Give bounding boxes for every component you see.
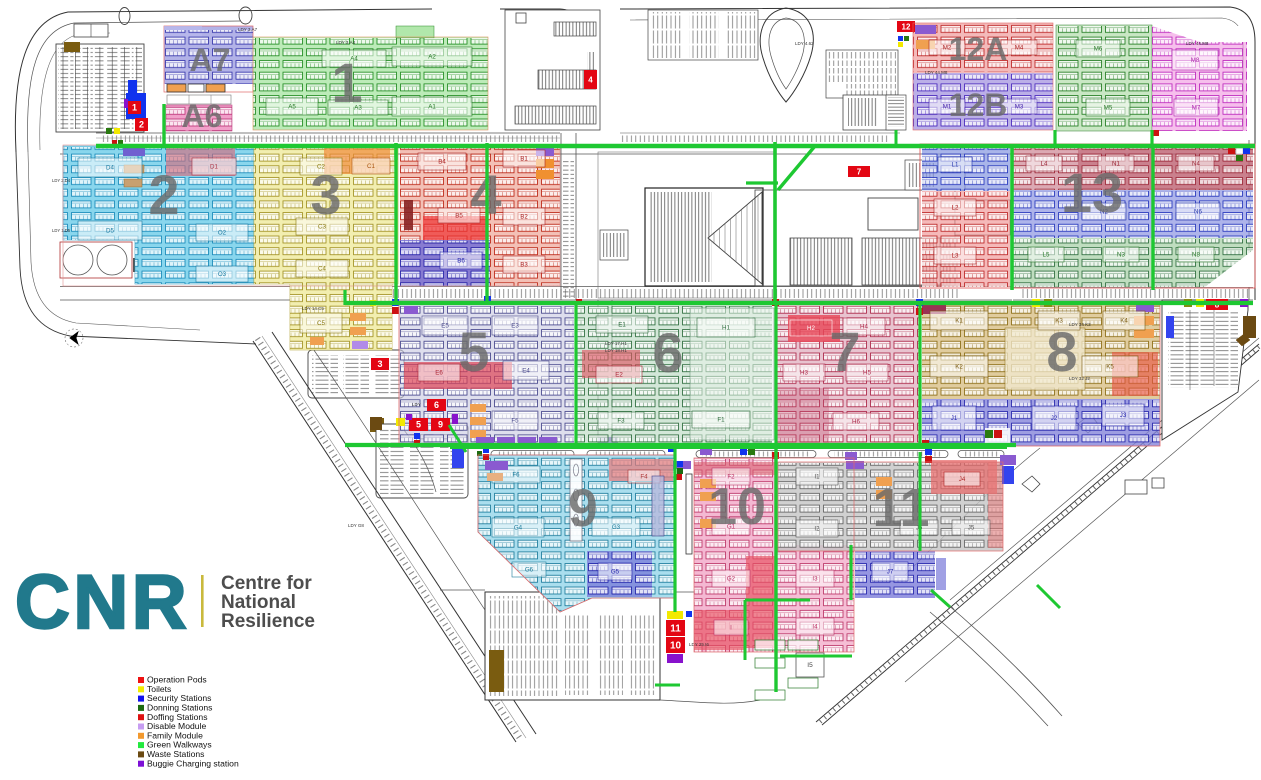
svg-text:G2: G2 <box>727 576 736 583</box>
svg-text:I1: I1 <box>814 474 820 481</box>
svg-text:J1: J1 <box>951 415 958 422</box>
svg-text:H4: H4 <box>860 324 868 331</box>
svg-text:E5: E5 <box>441 323 449 330</box>
svg-text:A1: A1 <box>428 104 436 111</box>
svg-text:N4: N4 <box>1192 161 1200 168</box>
svg-text:E2: E2 <box>615 372 623 379</box>
svg-text:LDY 4.62: LDY 4.62 <box>795 41 814 46</box>
svg-text:G4: G4 <box>514 525 523 532</box>
svg-text:M5: M5 <box>1104 105 1113 112</box>
svg-text:J4: J4 <box>959 476 966 483</box>
svg-text:E1: E1 <box>618 322 626 329</box>
svg-text:O3: O3 <box>218 271 227 278</box>
svg-text:B6: B6 <box>457 258 465 265</box>
svg-text:H3: H3 <box>800 370 808 377</box>
svg-text:LDY G8: LDY G8 <box>348 523 364 528</box>
svg-text:L2: L2 <box>952 205 959 212</box>
svg-text:E4: E4 <box>522 368 530 375</box>
svg-text:3: 3 <box>310 163 341 226</box>
svg-text:1: 1 <box>331 51 362 114</box>
svg-text:F1: F1 <box>717 417 725 424</box>
svg-text:M8: M8 <box>1191 57 1200 64</box>
svg-text:H2: H2 <box>807 325 815 332</box>
svg-text:M4: M4 <box>1015 45 1024 52</box>
svg-text:A5: A5 <box>288 104 296 111</box>
svg-text:2: 2 <box>139 120 144 130</box>
svg-text:L3: L3 <box>952 253 959 260</box>
svg-text:LDY 14.C5: LDY 14.C5 <box>302 306 324 311</box>
svg-text:M6: M6 <box>1094 46 1103 53</box>
svg-text:13: 13 <box>1061 161 1123 224</box>
svg-text:C5: C5 <box>317 320 325 327</box>
svg-text:LDY 2.D4: LDY 2.D4 <box>52 178 71 183</box>
svg-text:6: 6 <box>434 400 439 410</box>
svg-text:10: 10 <box>708 478 766 536</box>
svg-text:J5: J5 <box>968 525 975 532</box>
svg-text:12B: 12B <box>949 87 1008 123</box>
svg-text:F6: F6 <box>512 472 520 479</box>
svg-text:D1: D1 <box>210 164 218 171</box>
svg-text:LDY 3.A4: LDY 3.A4 <box>336 40 356 45</box>
svg-text:2: 2 <box>148 163 179 226</box>
svg-text:6: 6 <box>652 321 683 384</box>
svg-text:CNR: CNR <box>15 560 190 645</box>
svg-text:7: 7 <box>857 167 862 176</box>
svg-text:C4: C4 <box>318 266 326 273</box>
svg-text:H1: H1 <box>722 325 730 332</box>
svg-text:J7: J7 <box>887 569 894 576</box>
svg-text:LDY: LDY <box>412 402 421 407</box>
svg-text:G6: G6 <box>525 567 534 574</box>
svg-text:A7: A7 <box>190 42 231 78</box>
svg-text:5: 5 <box>458 320 489 383</box>
svg-text:9: 9 <box>438 420 443 430</box>
svg-text:G3: G3 <box>612 524 621 531</box>
svg-text:B5: B5 <box>455 213 463 220</box>
svg-text:K2: K2 <box>955 364 963 371</box>
svg-text:F3: F3 <box>617 418 625 425</box>
svg-text:I3: I3 <box>812 576 818 583</box>
svg-text:LDY 17.H1: LDY 17.H1 <box>605 341 627 346</box>
svg-text:12A: 12A <box>949 31 1008 67</box>
svg-text:5: 5 <box>416 420 421 430</box>
svg-text:N6: N6 <box>1194 209 1202 216</box>
svg-text:I4: I4 <box>812 624 818 631</box>
svg-text:LDY 1.D5: LDY 1.D5 <box>52 228 71 233</box>
svg-text:LDY 25.I6: LDY 25.I6 <box>689 642 709 647</box>
svg-text:C1: C1 <box>367 163 375 170</box>
svg-text:L1: L1 <box>952 162 959 169</box>
svg-text:A2: A2 <box>428 54 436 61</box>
svg-text:LDY 3.A7: LDY 3.A7 <box>238 27 258 32</box>
svg-text:Resilience: Resilience <box>221 611 315 632</box>
svg-text:10: 10 <box>670 641 682 652</box>
svg-text:L5: L5 <box>1043 252 1050 259</box>
svg-text:F4: F4 <box>640 474 648 481</box>
svg-text:LDY 44.M8: LDY 44.M8 <box>1186 41 1209 46</box>
svg-text:LDY 34 K3: LDY 34 K3 <box>1069 322 1091 327</box>
svg-text:B3: B3 <box>520 262 528 269</box>
svg-text:National: National <box>221 592 296 613</box>
svg-text:Centre for: Centre for <box>221 573 312 594</box>
svg-text:B4: B4 <box>438 159 446 166</box>
svg-text:LDY 18.H1: LDY 18.H1 <box>605 348 627 353</box>
svg-text:M3: M3 <box>1015 104 1024 111</box>
svg-text:E3: E3 <box>511 323 519 330</box>
svg-text:1: 1 <box>132 103 137 113</box>
svg-text:N3: N3 <box>1117 252 1125 259</box>
svg-text:J2: J2 <box>1051 415 1058 422</box>
svg-text:8: 8 <box>1046 320 1077 383</box>
svg-text:4: 4 <box>588 75 593 84</box>
svg-text:K5: K5 <box>1106 364 1114 371</box>
svg-text:F5: F5 <box>511 418 519 425</box>
svg-text:K1: K1 <box>955 318 963 325</box>
svg-text:O2: O2 <box>218 230 227 237</box>
svg-text:K4: K4 <box>1120 318 1128 325</box>
svg-text:9: 9 <box>568 479 597 538</box>
svg-text:Buggie Charging station: Buggie Charging station <box>147 758 239 768</box>
svg-text:H6: H6 <box>852 419 860 426</box>
svg-text:D5: D5 <box>106 228 114 235</box>
svg-text:B2: B2 <box>520 214 528 221</box>
svg-text:E6: E6 <box>435 370 443 377</box>
svg-text:A6: A6 <box>182 98 223 134</box>
svg-text:12: 12 <box>902 22 911 31</box>
svg-text:B1: B1 <box>520 156 528 163</box>
svg-text:G5: G5 <box>611 569 620 576</box>
svg-text:D4: D4 <box>106 165 114 172</box>
svg-text:J3: J3 <box>1120 412 1127 419</box>
svg-text:L4: L4 <box>1041 161 1048 168</box>
svg-text:I: I <box>730 625 732 632</box>
svg-text:11: 11 <box>670 624 681 635</box>
svg-text:N8: N8 <box>1192 252 1200 259</box>
svg-text:I5: I5 <box>807 662 813 669</box>
svg-text:H5: H5 <box>863 370 871 377</box>
svg-text:I2: I2 <box>814 526 820 533</box>
svg-text:M7: M7 <box>1192 105 1201 112</box>
svg-text:LDY 44.M8: LDY 44.M8 <box>925 70 948 75</box>
svg-text:3: 3 <box>377 359 382 369</box>
svg-text:LDY 32 J2: LDY 32 J2 <box>1069 376 1090 381</box>
svg-text:7: 7 <box>829 320 860 383</box>
